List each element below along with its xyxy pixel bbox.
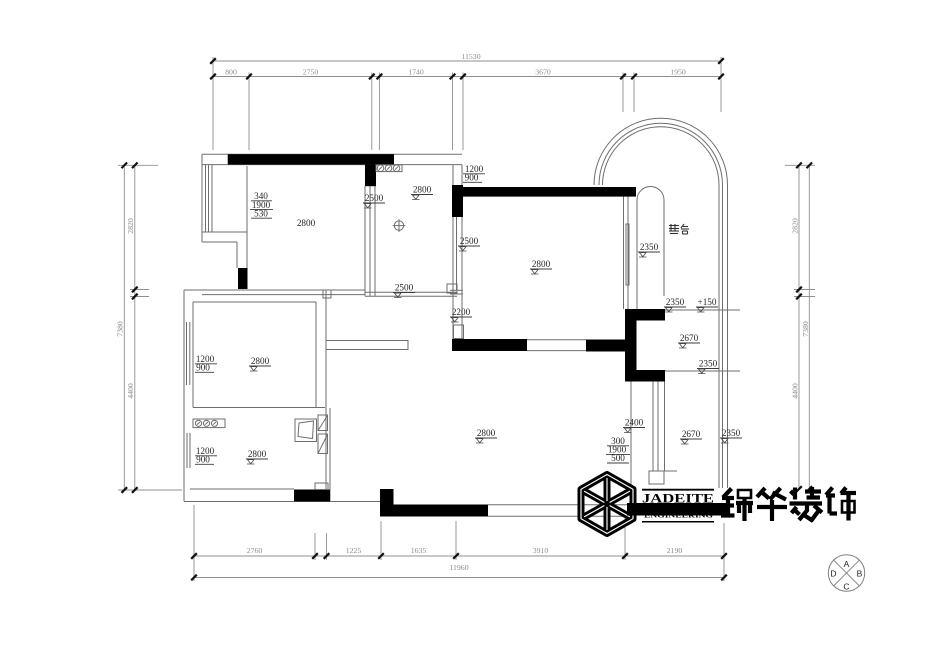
- svg-text:2500: 2500: [365, 193, 384, 203]
- svg-text:2350: 2350: [666, 297, 685, 307]
- svg-text:2670: 2670: [682, 429, 701, 439]
- svg-text:4400: 4400: [126, 383, 135, 399]
- svg-text:2800: 2800: [251, 356, 270, 366]
- svg-text:2670: 2670: [680, 333, 699, 343]
- svg-text:2800: 2800: [532, 259, 551, 269]
- svg-text:2800: 2800: [248, 449, 267, 459]
- svg-text:500: 500: [611, 453, 625, 463]
- svg-text:2190: 2190: [667, 546, 683, 555]
- svg-text:4400: 4400: [791, 383, 800, 399]
- svg-text:7380: 7380: [116, 321, 125, 337]
- svg-text:2800: 2800: [413, 185, 432, 195]
- svg-text:2350: 2350: [722, 428, 741, 438]
- svg-text:1740: 1740: [408, 68, 424, 77]
- svg-text:2800: 2800: [297, 218, 316, 228]
- svg-text:2820: 2820: [126, 218, 135, 234]
- svg-text:2200: 2200: [452, 307, 471, 317]
- svg-text:2400: 2400: [625, 418, 644, 428]
- svg-text:2760: 2760: [247, 546, 263, 555]
- svg-text:2500: 2500: [460, 236, 479, 246]
- svg-text:900: 900: [196, 455, 210, 465]
- svg-text:C: C: [843, 582, 849, 592]
- svg-text:A: A: [844, 559, 850, 569]
- svg-text:1225: 1225: [346, 546, 362, 555]
- svg-text:+150: +150: [698, 297, 717, 307]
- svg-text:1950: 1950: [670, 68, 686, 77]
- svg-text:D: D: [830, 569, 836, 579]
- svg-text:2750: 2750: [303, 68, 319, 77]
- svg-text:2500: 2500: [395, 283, 414, 293]
- svg-text:2350: 2350: [699, 359, 718, 369]
- svg-text:7380: 7380: [801, 321, 810, 337]
- svg-text:11960: 11960: [449, 563, 468, 572]
- svg-text:900: 900: [196, 363, 210, 373]
- svg-text:2800: 2800: [477, 428, 496, 438]
- svg-text:2350: 2350: [640, 242, 659, 252]
- svg-text:3910: 3910: [533, 546, 549, 555]
- svg-text:B: B: [857, 569, 863, 579]
- svg-text:3670: 3670: [535, 68, 551, 77]
- svg-text:530: 530: [254, 208, 268, 218]
- svg-text:1635: 1635: [411, 546, 427, 555]
- svg-text:900: 900: [465, 173, 479, 183]
- svg-text:800: 800: [225, 68, 237, 77]
- svg-text:11530: 11530: [461, 52, 480, 61]
- svg-text:2820: 2820: [791, 218, 800, 234]
